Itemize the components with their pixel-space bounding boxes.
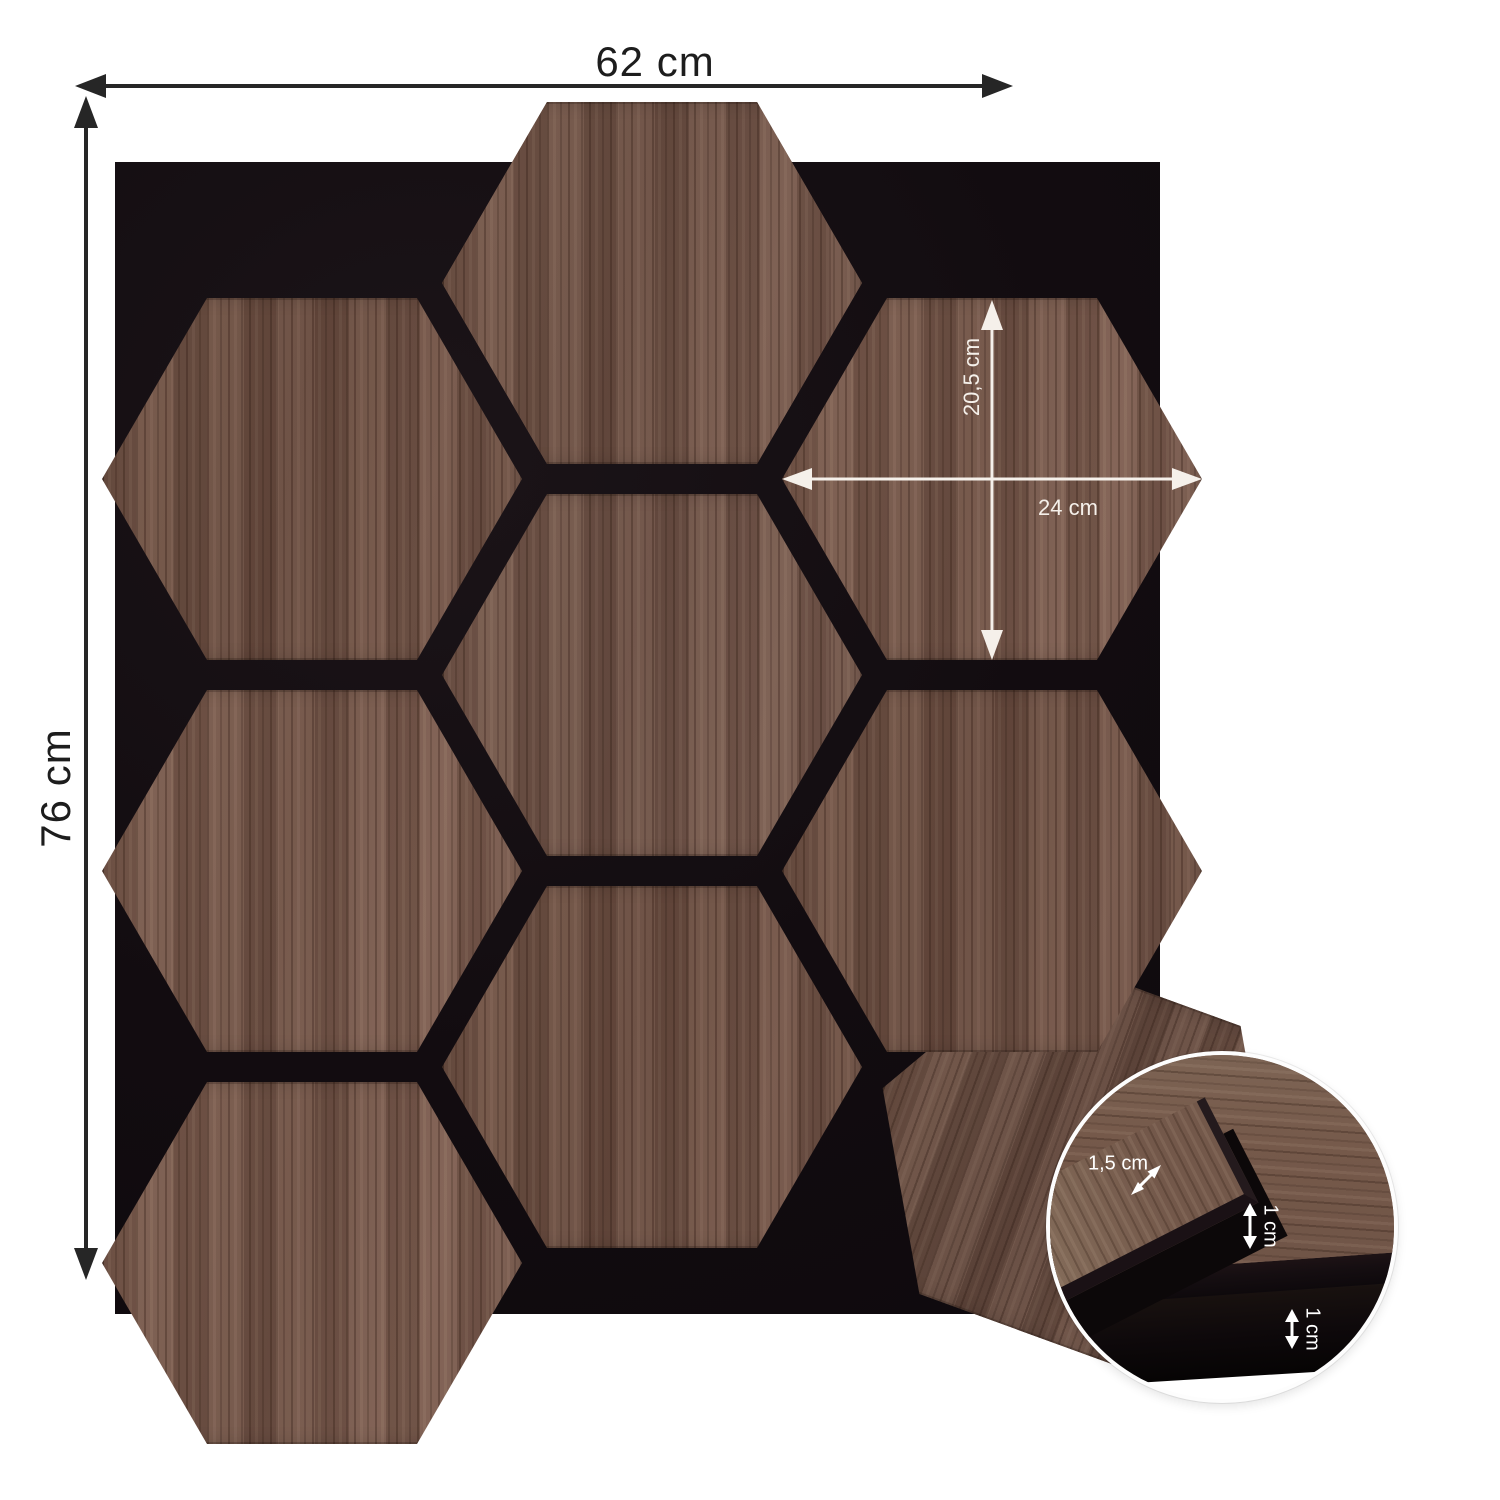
overall-height-label: 76 cm	[32, 728, 80, 847]
panel-thickness-label: 1,5 cm	[1088, 1153, 1148, 1176]
hexagon-height-label: 20,5 cm	[959, 338, 985, 416]
felt-thickness-label: 1 cm	[1301, 1307, 1324, 1350]
overall-width-label: 62 cm	[595, 38, 714, 86]
hexagon-width-label: 24 cm	[1038, 495, 1098, 521]
overall-height-arrow	[74, 96, 98, 1280]
product-dimension-diagram: 62 cm 76 cm 20,5 cm 24 cm 1,5 cm 1 cm 1 …	[0, 0, 1500, 1500]
panel-edge-thickness-label: 1 cm	[1259, 1204, 1282, 1247]
detail-inset-circle	[1046, 1051, 1398, 1403]
overall-width-arrow	[75, 74, 1013, 98]
